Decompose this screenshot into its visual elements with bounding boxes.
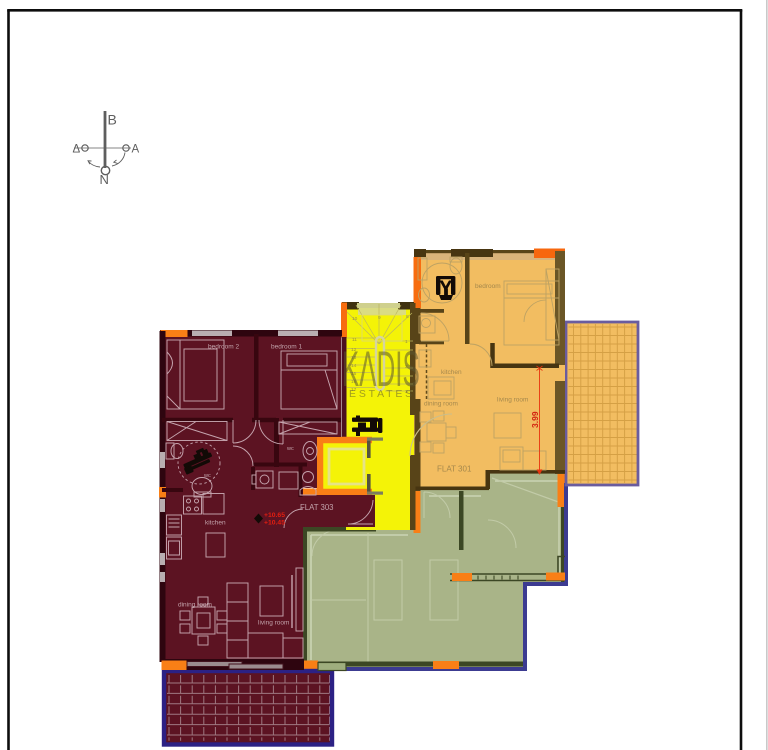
svg-text:kitchen: kitchen [205, 520, 226, 527]
svg-text:+10.45: +10.45 [264, 520, 285, 527]
svg-text:10: 10 [352, 316, 358, 322]
svg-text:bedroom 1: bedroom 1 [271, 344, 302, 351]
svg-text:B: B [108, 112, 117, 128]
svg-text:bedroom 2: bedroom 2 [208, 344, 239, 351]
svg-text:bedroom: bedroom [475, 283, 501, 290]
svg-text:N: N [100, 172, 109, 187]
svg-text:living room: living room [497, 397, 528, 404]
svg-text:dining room: dining room [424, 401, 458, 408]
svg-text:living room: living room [258, 620, 289, 627]
svg-text:FLAT 303: FLAT 303 [300, 503, 334, 512]
svg-text:wc: wc [203, 473, 211, 479]
svg-text:+10.65: +10.65 [264, 512, 285, 519]
svg-text:A: A [132, 144, 140, 156]
svg-text:8: 8 [406, 314, 409, 320]
svg-text:9: 9 [378, 315, 381, 321]
svg-text:3.99: 3.99 [530, 411, 540, 428]
svg-text:ESTATES: ESTATES [349, 388, 415, 400]
svg-text:kitchen: kitchen [441, 369, 462, 376]
svg-text:wc: wc [286, 446, 294, 452]
svg-text:Δ: Δ [73, 144, 81, 156]
svg-text:dining room: dining room [178, 602, 212, 609]
svg-text:FLAT 301: FLAT 301 [437, 465, 472, 474]
